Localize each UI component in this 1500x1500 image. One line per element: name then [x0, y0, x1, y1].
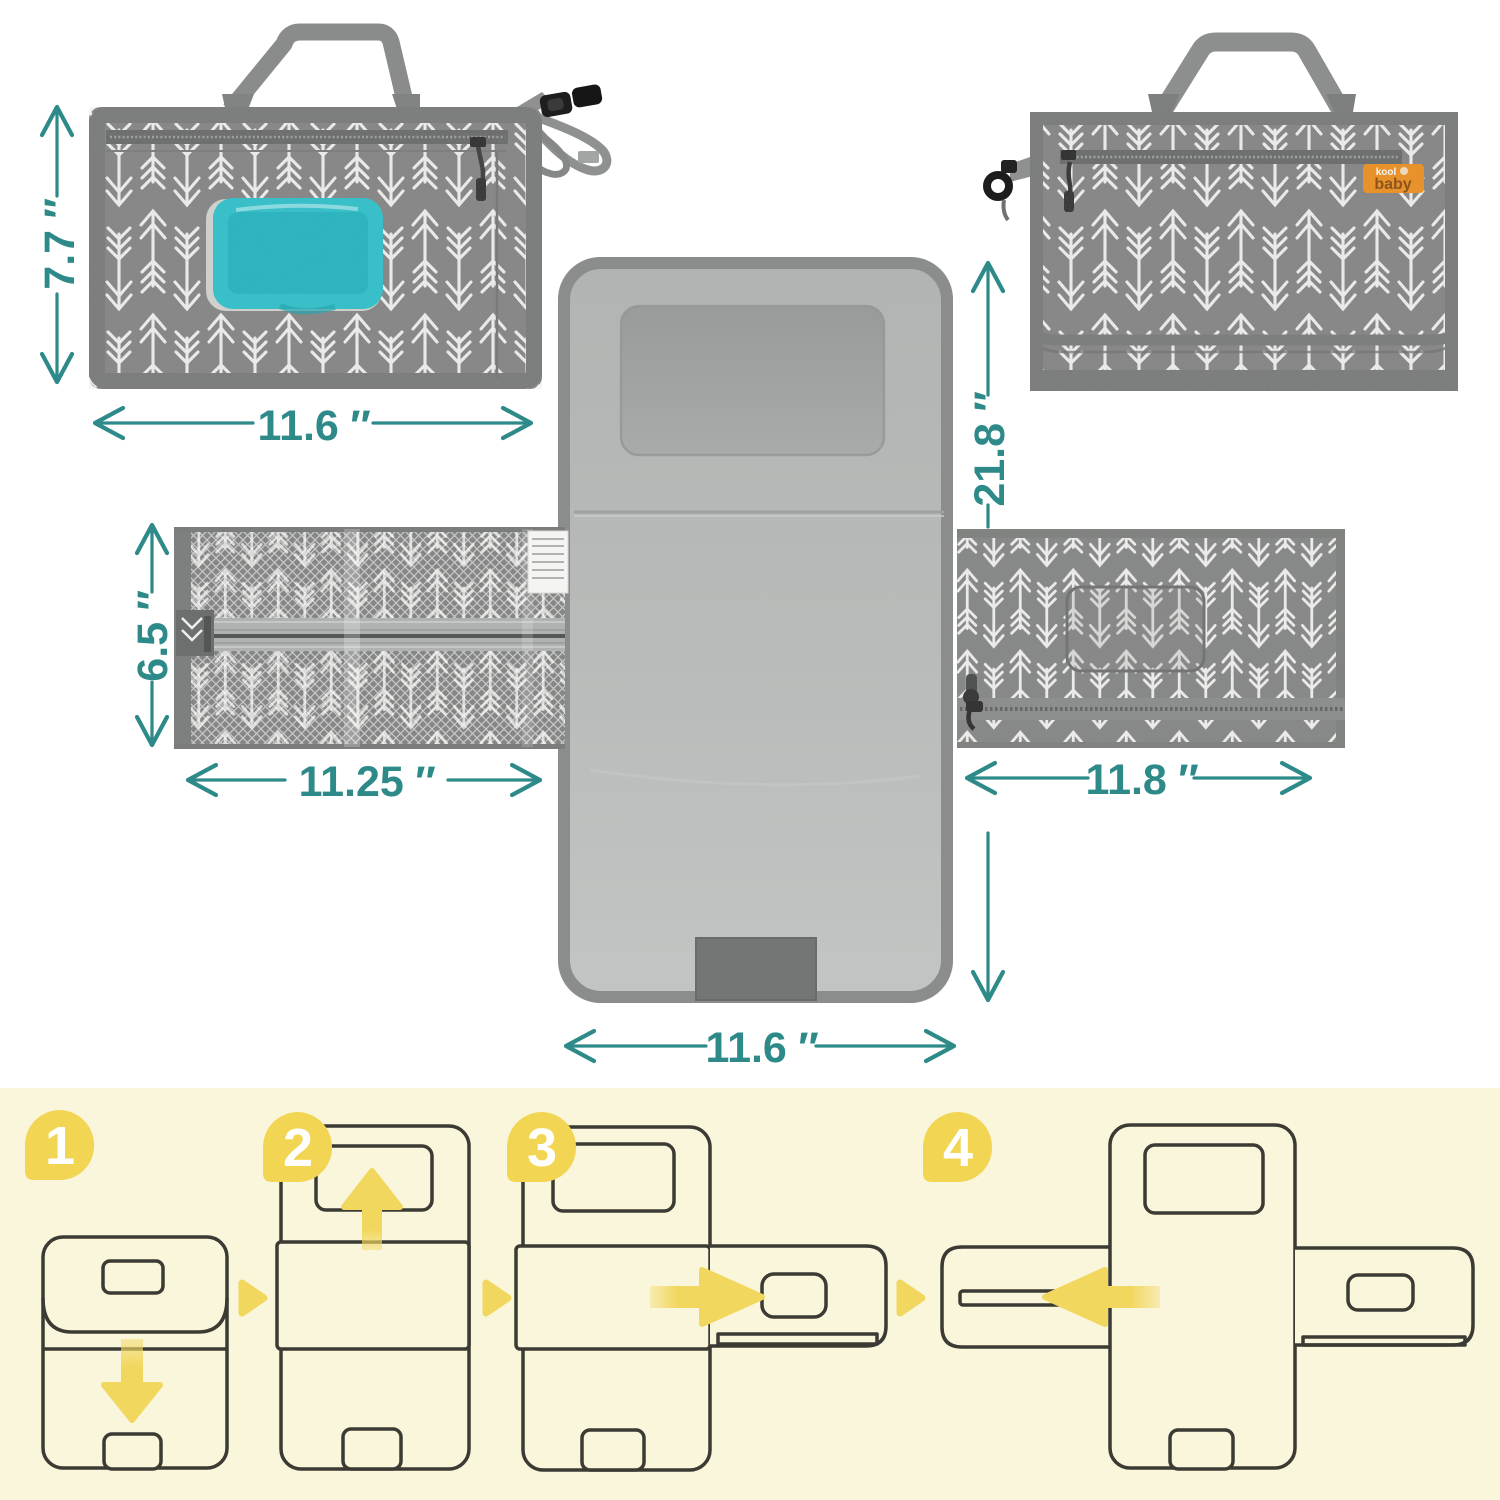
- svg-text:6.5″: 6.5″: [129, 590, 177, 682]
- svg-text:11.6″: 11.6″: [706, 1024, 819, 1072]
- svg-text:11.8″: 11.8″: [1086, 756, 1199, 804]
- svg-text:11.25″: 11.25″: [299, 758, 436, 806]
- svg-text:7.7″: 7.7″: [36, 198, 84, 290]
- svg-text:21.8″: 21.8″: [966, 391, 1014, 507]
- svg-text:4: 4: [943, 1118, 973, 1178]
- svg-text:1: 1: [45, 1116, 75, 1176]
- svg-text:3: 3: [527, 1118, 557, 1178]
- svg-text:11.6″: 11.6″: [258, 402, 371, 450]
- svg-text:2: 2: [283, 1118, 313, 1178]
